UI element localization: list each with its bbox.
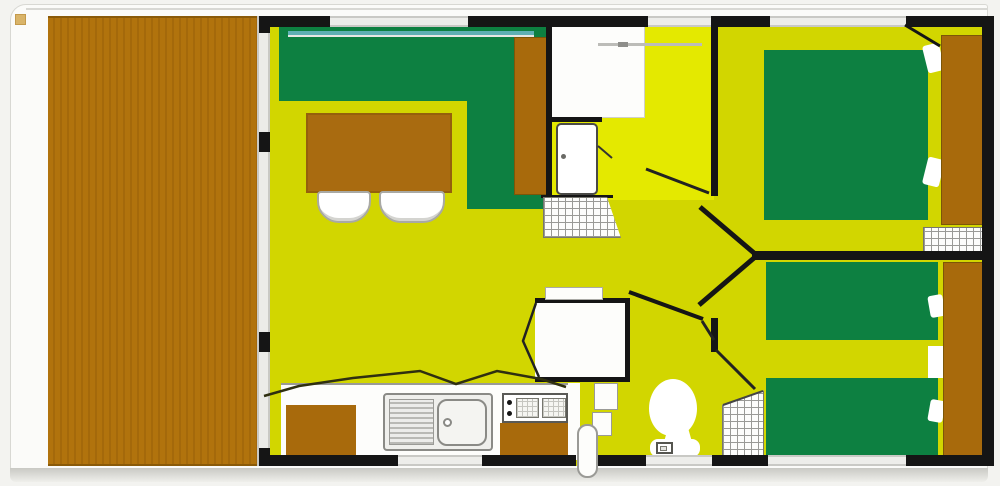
wc-angled-wall [629,292,703,319]
bedroom-door-leaf [646,169,709,193]
thin-lines-overlay [0,0,1000,486]
wc-shelf-edge [723,391,763,405]
wardrobe-corner-line [905,25,940,46]
entrance-door-swing [598,146,612,158]
hall-angled-wall-lower [699,258,754,305]
wc-door-leaf [716,350,755,389]
twin-bedroom-door-leaf [702,321,714,340]
kitchen-cabinet-doors-line [264,371,566,396]
shower-bifold-door [523,303,539,377]
floorplan-canvas [0,0,1000,486]
hall-angled-wall-upper [700,207,754,253]
